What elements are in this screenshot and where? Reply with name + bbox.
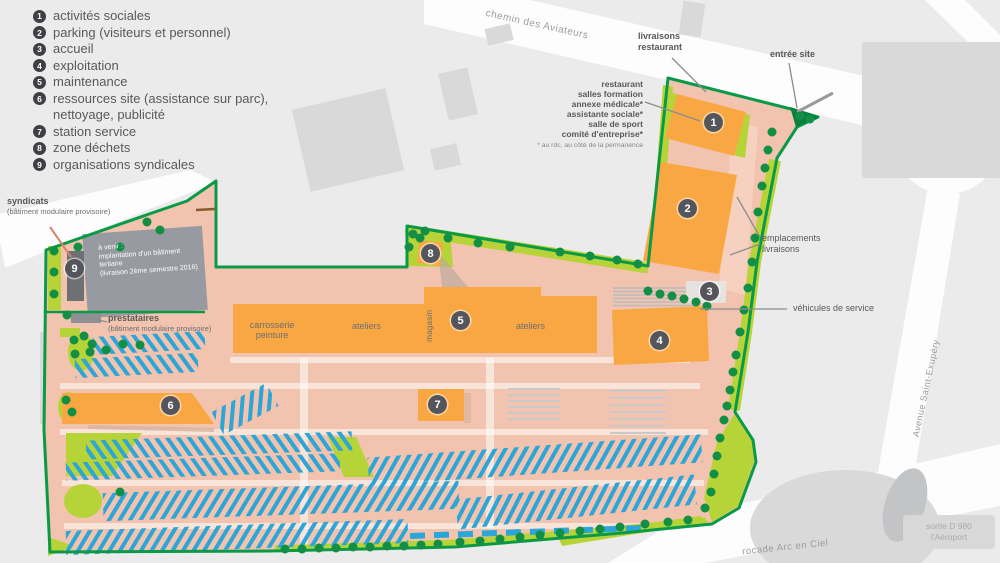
marker-number: 1: [710, 117, 716, 129]
tree-icon: [729, 368, 738, 377]
legend-item: 6 ressources site (assistance sur parc),: [33, 91, 268, 108]
marker-number: 6: [167, 400, 173, 412]
legend-item: 2 parking (visiteurs et personnel): [33, 25, 268, 42]
tree-icon: [116, 488, 125, 497]
marker-number: 8: [427, 248, 433, 260]
tree-icon: [736, 328, 745, 337]
tree-icon: [634, 260, 643, 269]
tree-icon: [70, 336, 79, 345]
marker-number: 2: [684, 203, 690, 215]
legend-number-badge: 9: [33, 158, 46, 171]
tree-icon: [768, 128, 777, 137]
services-footnote: * au rdc, au côté de la permanence: [537, 141, 643, 151]
service-line: salles formation: [537, 89, 643, 99]
tree-icon: [726, 386, 735, 395]
legend-number-badge: 2: [33, 26, 46, 39]
tree-icon: [143, 218, 152, 227]
tree-icon: [86, 348, 95, 357]
tree-icon: [713, 452, 722, 461]
tree-icon: [434, 540, 443, 549]
exit-line2: l'Aéroport: [903, 532, 995, 543]
tree-icon: [536, 531, 545, 540]
marker-number: 9: [71, 263, 77, 275]
tree-icon: [474, 239, 483, 248]
map-marker-1: 1: [704, 113, 723, 132]
tree-icon: [405, 243, 414, 252]
tree-icon: [586, 252, 595, 261]
tree-icon: [596, 525, 605, 534]
map-marker-5: 5: [451, 311, 470, 330]
tree-icon: [281, 545, 290, 554]
legend-label: organisations syndicales: [53, 157, 195, 174]
map-marker-4: 4: [650, 331, 669, 350]
tree-icon: [50, 247, 59, 256]
legend-label: maintenance: [53, 74, 127, 91]
map-marker-7: 7: [428, 395, 447, 414]
tree-icon: [806, 115, 815, 124]
marker-number: 4: [656, 335, 662, 347]
tree-icon: [644, 287, 653, 296]
tree-icon: [684, 516, 693, 525]
tree-icon: [758, 182, 767, 191]
tree-icon: [613, 256, 622, 265]
tree-icon: [764, 146, 773, 155]
tree-icon: [740, 306, 749, 315]
tree-icon: [298, 545, 307, 554]
tree-icon: [761, 164, 770, 173]
tree-icon: [723, 402, 732, 411]
tree-icon: [732, 351, 741, 360]
tree-icon: [50, 268, 59, 277]
legend-label: station service: [53, 124, 136, 141]
label-carrosserie-peinture: carrosserie peinture: [240, 320, 304, 340]
legend-item: 7 station service: [33, 124, 268, 141]
legend-label: accueil: [53, 41, 93, 58]
tree-icon: [796, 112, 805, 121]
label-ateliers-left: ateliers: [352, 321, 381, 331]
tree-icon: [416, 234, 425, 243]
legend-label: zone déchets: [53, 140, 130, 157]
map-marker-3: 3: [700, 282, 719, 301]
map-marker-9: 9: [65, 259, 84, 278]
label-entree-site: entrée site: [770, 49, 815, 60]
future-building-note: à venir : implantation d'un bâtiment ter…: [98, 237, 206, 279]
prestataires-subtitle: (bâtiment modulaire provisoire): [108, 324, 211, 333]
tree-icon: [668, 292, 677, 301]
legend-label: activités sociales: [53, 8, 151, 25]
tree-icon: [366, 543, 375, 552]
service-line: restaurant: [537, 79, 643, 89]
legend-number-badge: 6: [33, 92, 46, 105]
tree-icon: [664, 518, 673, 527]
tree-icon: [136, 341, 145, 350]
label-magasin: magasin: [424, 310, 434, 342]
tree-icon: [63, 311, 72, 320]
legend-number-badge: 1: [33, 10, 46, 23]
tree-icon: [716, 434, 725, 443]
syndicats-subtitle: (bâtiment modulaire provisoire): [7, 207, 110, 216]
label-livraisons-restaurant: livraisons restaurant: [638, 31, 718, 52]
tree-icon: [417, 541, 426, 550]
exit-line1: sortie D 980: [903, 521, 995, 532]
label-emplacements-livraisons: emplacements livraisons: [762, 233, 847, 254]
tree-icon: [576, 527, 585, 536]
legend-number-badge: 8: [33, 142, 46, 155]
tree-icon: [506, 243, 515, 252]
tree-icon: [102, 346, 111, 355]
legend-item: 8 zone déchets: [33, 140, 268, 157]
tree-icon: [74, 243, 83, 252]
tree-icon: [88, 340, 97, 349]
label-vehicules-service: véhicules de service: [793, 303, 874, 314]
tree-icon: [68, 408, 77, 417]
legend-label: ressources site (assistance sur parc),: [53, 91, 268, 108]
label-prestataires: prestataires (bâtiment modulaire proviso…: [108, 313, 211, 333]
tree-icon: [720, 416, 729, 425]
legend-item: 5 maintenance: [33, 74, 268, 91]
gate: [196, 209, 215, 210]
tree-icon: [701, 504, 710, 513]
legend-number-badge: 5: [33, 76, 46, 89]
tree-icon: [754, 208, 763, 217]
tree-icon: [656, 290, 665, 299]
tree-icon: [62, 396, 71, 405]
map-marker-8: 8: [421, 244, 440, 263]
legend-item: 9 organisations syndicales: [33, 157, 268, 174]
legend-item: 1 activités sociales: [33, 8, 268, 25]
tree-icon: [616, 523, 625, 532]
service-line: assistante sociale*: [537, 109, 643, 119]
map-marker-6: 6: [161, 396, 180, 415]
legend-number-badge: 7: [33, 125, 46, 138]
tree-icon: [692, 298, 701, 307]
label-ateliers-right: ateliers: [516, 321, 545, 331]
service-line: salle de sport: [537, 119, 643, 129]
legend-label: parking (visiteurs et personnel): [53, 25, 231, 42]
legend-item: 3 accueil: [33, 41, 268, 58]
service-line: annexe médicale*: [537, 99, 643, 109]
tree-icon: [80, 332, 89, 341]
tree-icon: [456, 538, 465, 547]
prestataires-title: prestataires: [108, 313, 211, 324]
tree-icon: [71, 350, 80, 359]
marker-number: 3: [706, 286, 712, 298]
building1-services-list: restaurant salles formation annexe médic…: [537, 79, 643, 151]
tree-icon: [476, 537, 485, 546]
tree-icon: [748, 258, 757, 267]
tree-icon: [156, 226, 165, 235]
tree-icon: [332, 544, 341, 553]
marker-number: 7: [434, 399, 440, 411]
legend-item: 4 exploitation: [33, 58, 268, 75]
map-marker-2: 2: [678, 199, 697, 218]
tree-icon: [710, 470, 719, 479]
label-syndicats: syndicats (bâtiment modulaire provisoire…: [7, 196, 110, 216]
service-line: comité d'entreprise*: [537, 129, 643, 139]
tree-icon: [50, 290, 59, 299]
tree-icon: [400, 542, 409, 551]
legend-number-badge: 4: [33, 59, 46, 72]
legend-number-badge: 3: [33, 43, 46, 56]
site-plan: 1 activités sociales 2 parking (visiteur…: [0, 0, 1000, 563]
tree-icon: [444, 234, 453, 243]
legend-label-wrap: nettoyage, publicité: [53, 107, 268, 124]
legend: 1 activités sociales 2 parking (visiteur…: [33, 8, 268, 173]
tree-icon: [641, 520, 650, 529]
tree-icon: [680, 295, 689, 304]
tree-icon: [556, 529, 565, 538]
tree-icon: [315, 544, 324, 553]
tree-icon: [383, 542, 392, 551]
building-6-ressources: [62, 393, 214, 424]
tree-icon: [119, 340, 128, 349]
exit-sign: sortie D 980 l'Aéroport: [903, 515, 995, 549]
tree-icon: [516, 533, 525, 542]
tree-icon: [556, 248, 565, 257]
tree-icon: [744, 284, 753, 293]
marker-number: 5: [457, 315, 463, 327]
tree-icon: [707, 488, 716, 497]
tree-icon: [496, 535, 505, 544]
tree-icon: [349, 543, 358, 552]
legend-label: exploitation: [53, 58, 119, 75]
syndicats-title: syndicats: [7, 196, 110, 207]
